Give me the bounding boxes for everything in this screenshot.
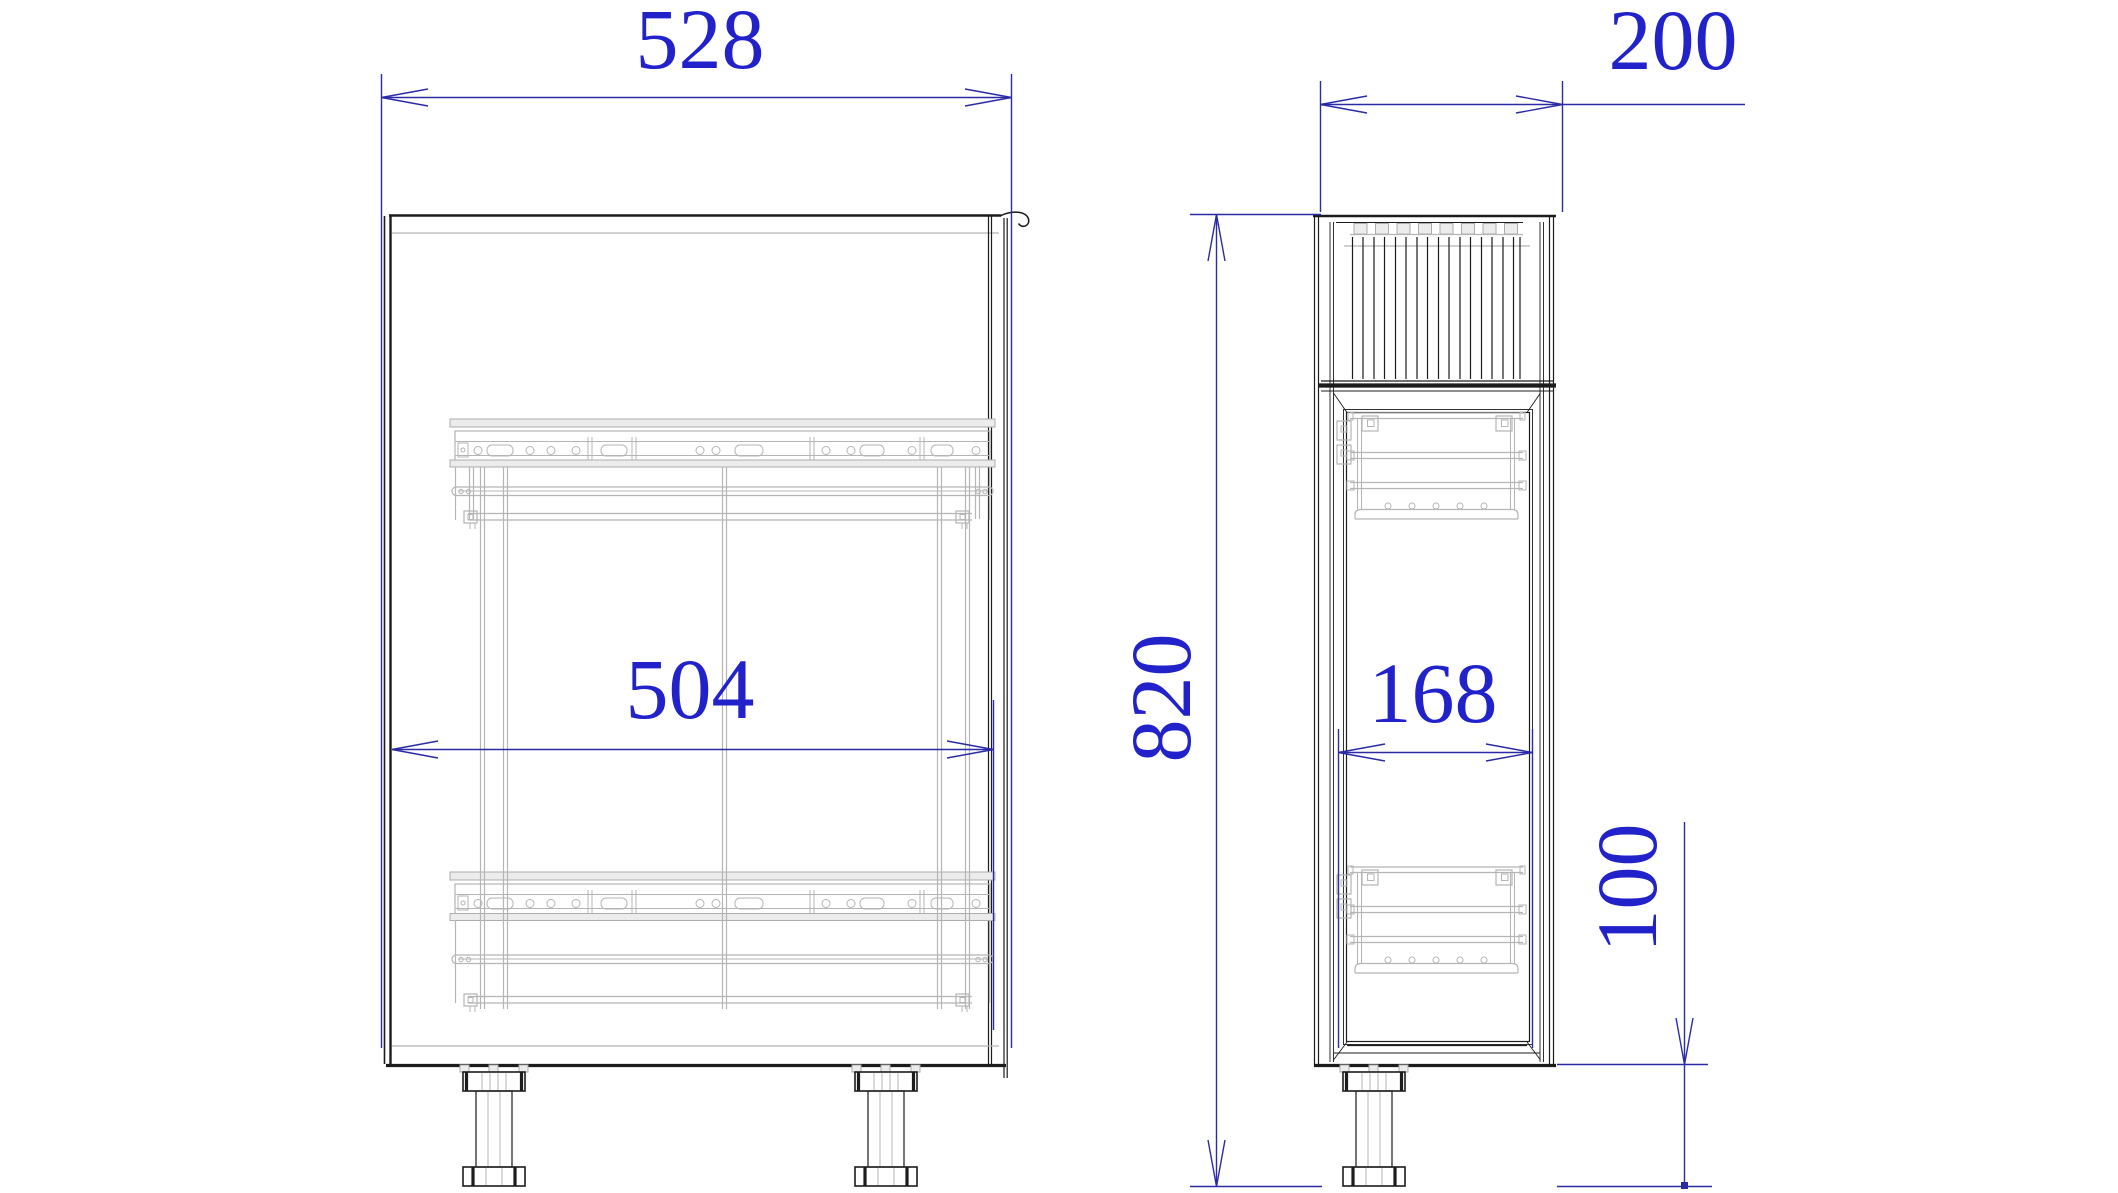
top-drawer-band: [1336, 223, 1530, 380]
dimension-504: 504: [392, 641, 994, 1030]
dim-504-label: 504: [626, 641, 755, 737]
dimension-528: 528: [382, 0, 1012, 1048]
side-front-inner-lines: [1540, 222, 1544, 1062]
dim-100-label: 100: [1579, 824, 1675, 953]
side-front-edge: [1550, 217, 1554, 1066]
dim-200-label: 200: [1609, 0, 1738, 88]
drawing-canvas: 528 504 200 820 168 100: [0, 0, 2118, 1193]
door-right-edge: [1004, 218, 1007, 1078]
front-left-leg: [460, 1065, 528, 1186]
technical-drawing: 528 504 200 820 168 100: [0, 0, 2118, 1193]
dim-100-extension-lines: [1557, 1065, 1712, 1187]
dimension-820: 820: [1113, 215, 1322, 1187]
side-basket-upper: [1337, 412, 1526, 519]
front-right-leg: [852, 1065, 920, 1186]
dimension-100: 100: [1557, 822, 1712, 1189]
dim-820-extension-lines: [1190, 215, 1322, 1187]
side-basket-lower: [1337, 866, 1526, 973]
dim-820-label: 820: [1113, 634, 1209, 763]
dimension-200: 200: [1321, 0, 1746, 212]
basket-frame-posts: [456, 467, 990, 1009]
dim-528-label: 528: [636, 0, 765, 87]
side-back-inner-lines: [1330, 222, 1334, 1062]
side-back-edge: [1315, 217, 1319, 1066]
dim-168-label: 168: [1369, 645, 1498, 741]
dim-168-extension-lines: [1339, 729, 1533, 1048]
dimension-168: 168: [1339, 645, 1533, 1048]
dim-100-end-tick: [1681, 1182, 1688, 1189]
side-leg: [1340, 1065, 1408, 1186]
dim-200-extension-lines: [1321, 81, 1563, 212]
